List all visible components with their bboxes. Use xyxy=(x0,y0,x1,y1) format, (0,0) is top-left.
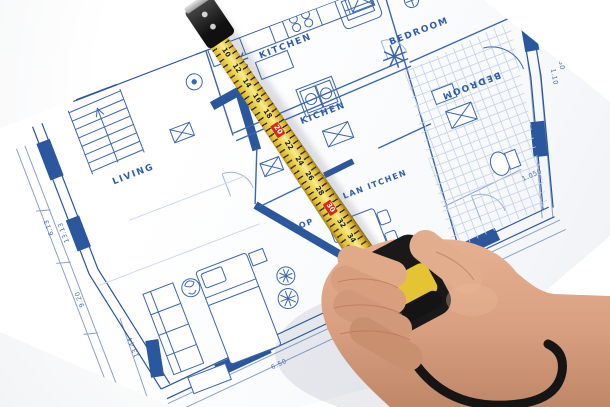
knuckle-highlight xyxy=(446,284,498,316)
photo-scene: KITCHEN BEDROOM KICHEN BEDROOM LIVING OP… xyxy=(0,0,610,407)
hand-holding-tape xyxy=(0,0,610,407)
